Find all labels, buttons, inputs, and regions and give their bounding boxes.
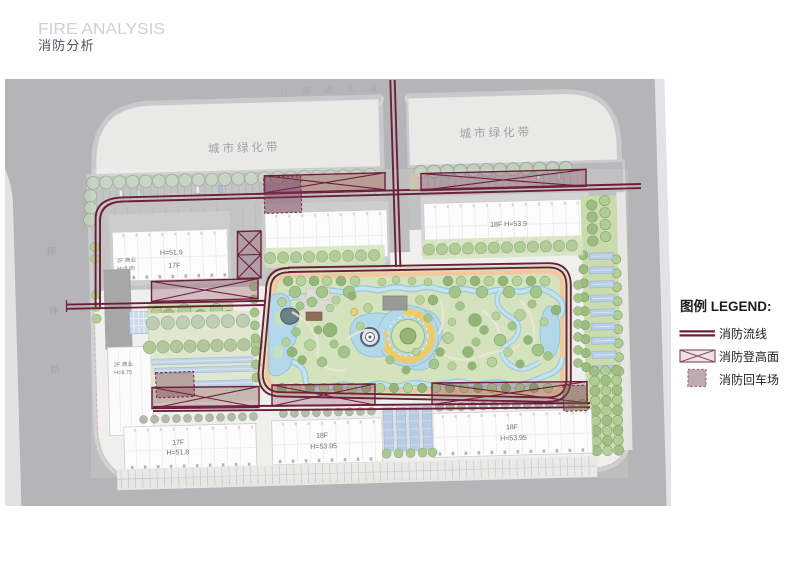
svg-text:图例 LEGEND:: 图例 LEGEND: (680, 298, 772, 314)
svg-text:林: 林 (48, 304, 58, 317)
svg-text:消防分析: 消防分析 (38, 38, 95, 53)
svg-text:振: 振 (47, 245, 57, 258)
svg-text:FIRE ANALYSIS: FIRE ANALYSIS (38, 21, 165, 38)
svg-text:路: 路 (50, 363, 60, 376)
svg-text:消防流线: 消防流线 (719, 326, 767, 341)
svg-text:消防登高面: 消防登高面 (719, 349, 779, 364)
svg-text:消防回车场: 消防回车场 (719, 372, 779, 387)
